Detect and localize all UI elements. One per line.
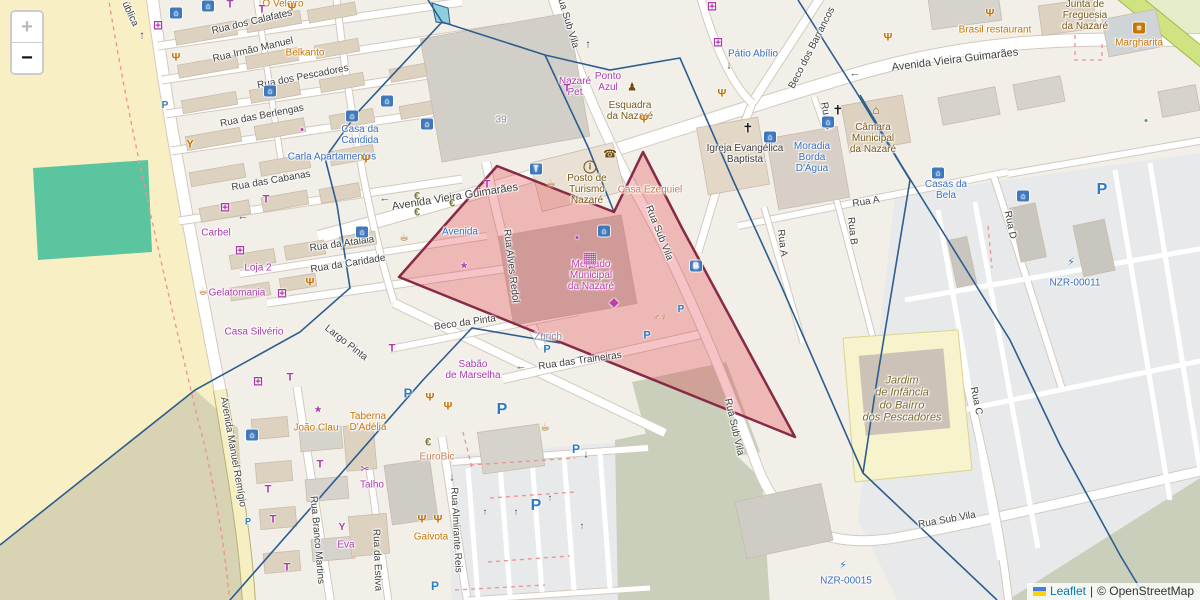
zoom-out-button[interactable]: − — [12, 43, 42, 73]
zoom-in-button[interactable]: + — [12, 12, 42, 43]
attribution-bar: Leaflet | © OpenStreetMap — [1027, 583, 1200, 600]
leaflet-link[interactable]: Leaflet — [1050, 584, 1086, 598]
zoom-control: + − — [10, 10, 44, 75]
leaflet-map[interactable]: Avenida Vieira GuimarãesAvenida Vieira G… — [0, 0, 1200, 600]
sports-pitch — [33, 160, 152, 260]
ukraine-flag-icon — [1033, 587, 1046, 596]
map-canvas — [0, 0, 1200, 600]
kindergarten-building — [859, 348, 951, 435]
attribution-separator: | — [1090, 584, 1093, 598]
osm-attribution[interactable]: © OpenStreetMap — [1097, 584, 1194, 598]
